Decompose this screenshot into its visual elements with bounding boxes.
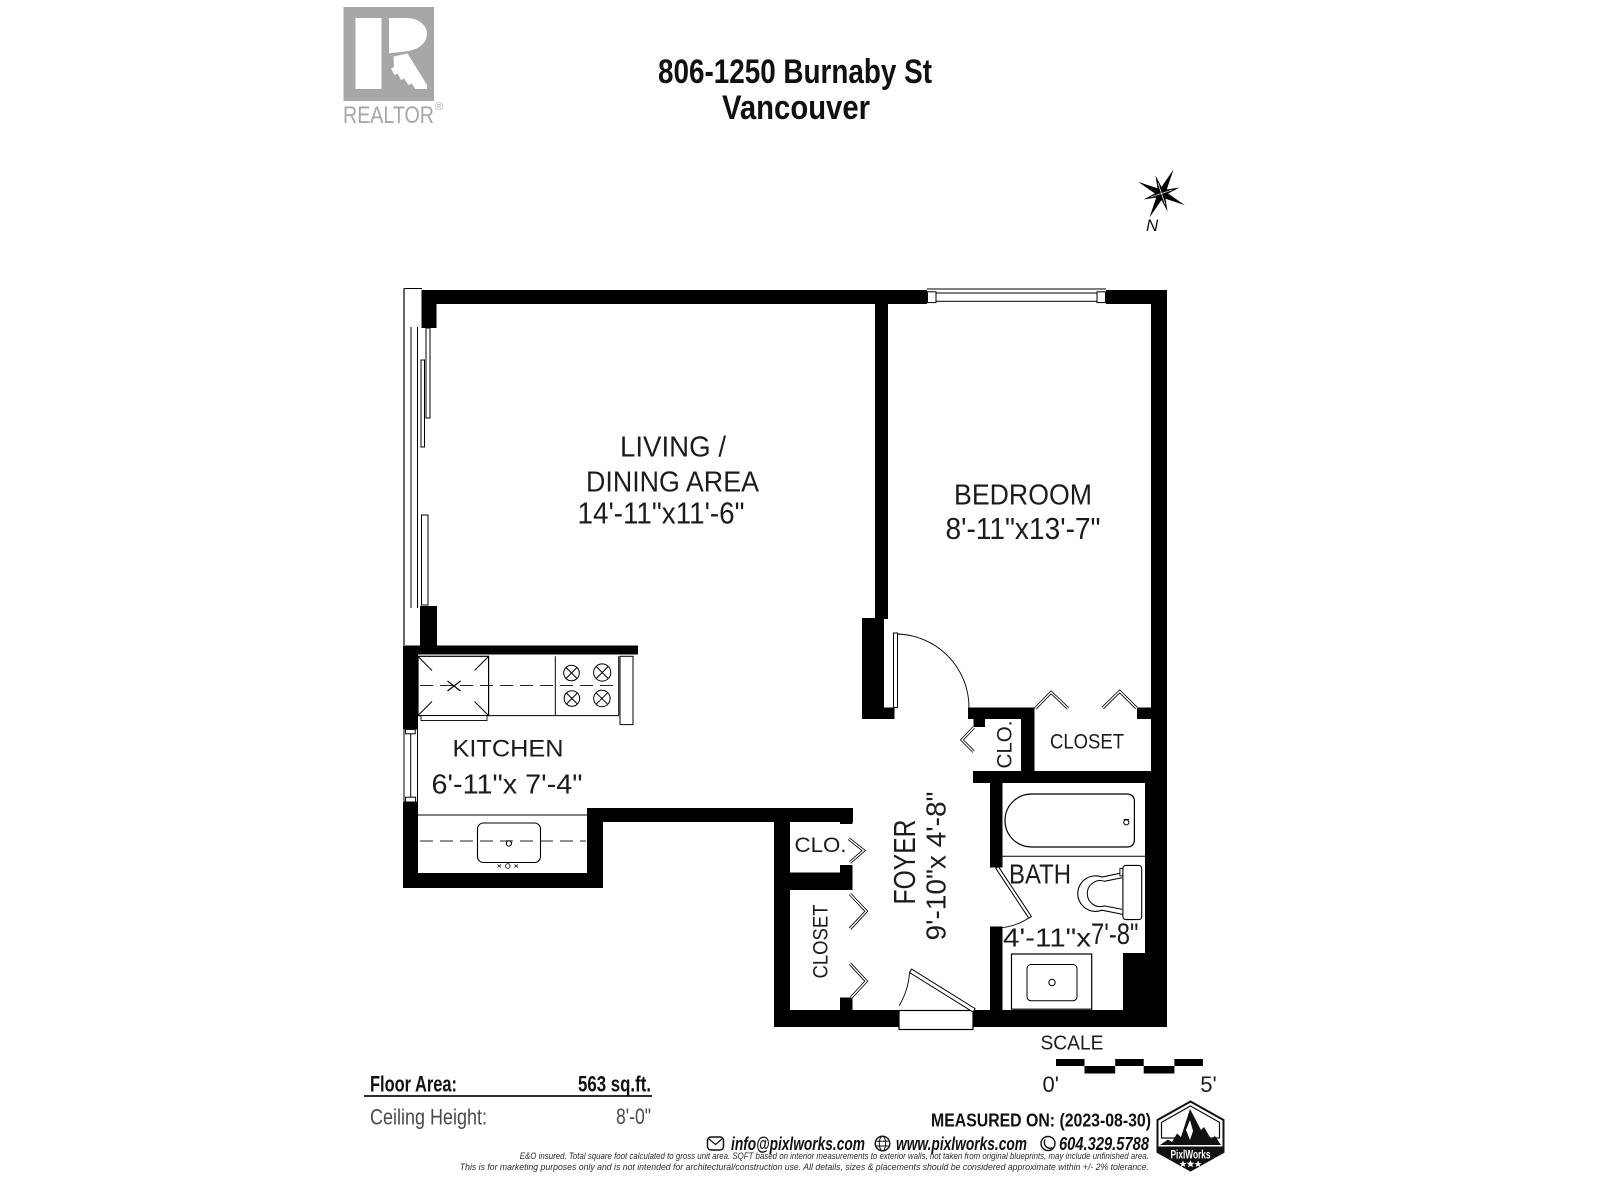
svg-text:563 sq.ft.: 563 sq.ft.: [578, 1072, 651, 1097]
svg-text:BEDROOM: BEDROOM: [954, 480, 1092, 512]
svg-text:DINING AREA: DINING AREA: [586, 467, 760, 499]
svg-text:5': 5': [1200, 1072, 1216, 1097]
svg-text:6'-11"x 7'-4": 6'-11"x 7'-4": [432, 769, 583, 800]
svg-text:8'-11"x13'-7": 8'-11"x13'-7": [946, 511, 1101, 546]
svg-text:MEASURED ON: (2023-08-30): MEASURED ON: (2023-08-30): [931, 1110, 1151, 1131]
svg-text:9'-10"x 4'-8": 9'-10"x 4'-8": [921, 792, 952, 941]
svg-text:This is for marketing purposes: This is for marketing purposes only and …: [460, 1162, 1149, 1172]
svg-text:7'-8": 7'-8": [1091, 918, 1139, 951]
svg-text:PixlWorks: PixlWorks: [1171, 1150, 1211, 1162]
svg-text:REALTOR: REALTOR: [343, 102, 434, 129]
svg-text:Ceiling Height:: Ceiling Height:: [370, 1105, 487, 1130]
svg-text:LIVING /: LIVING /: [620, 432, 727, 464]
svg-text:FOYER: FOYER: [887, 820, 922, 905]
svg-text:BATH: BATH: [1009, 859, 1071, 890]
svg-text:CLO.: CLO.: [994, 721, 1017, 769]
svg-text:Vancouver: Vancouver: [722, 89, 870, 127]
svg-text:SCALE: SCALE: [1041, 1033, 1104, 1055]
svg-text:CLOSET: CLOSET: [1050, 731, 1124, 754]
svg-text:CLOSET: CLOSET: [810, 904, 833, 978]
svg-text:806-1250 Burnaby St: 806-1250 Burnaby St: [658, 53, 932, 91]
svg-text:®: ®: [435, 101, 443, 113]
svg-text:14'-11"x11'-6": 14'-11"x11'-6": [578, 496, 745, 531]
svg-text:E&O insured. Total square foo: E&O insured. Total square foot calculate…: [520, 1151, 1149, 1161]
svg-text:CLO.: CLO.: [795, 834, 847, 857]
svg-text:0': 0': [1042, 1072, 1058, 1097]
svg-text:8'-0": 8'-0": [616, 1104, 651, 1129]
svg-text:4'-11"x: 4'-11"x: [1003, 923, 1091, 953]
svg-text:Floor Area:: Floor Area:: [370, 1072, 457, 1097]
svg-text:KITCHEN: KITCHEN: [453, 736, 564, 763]
svg-text:N: N: [1146, 216, 1159, 235]
